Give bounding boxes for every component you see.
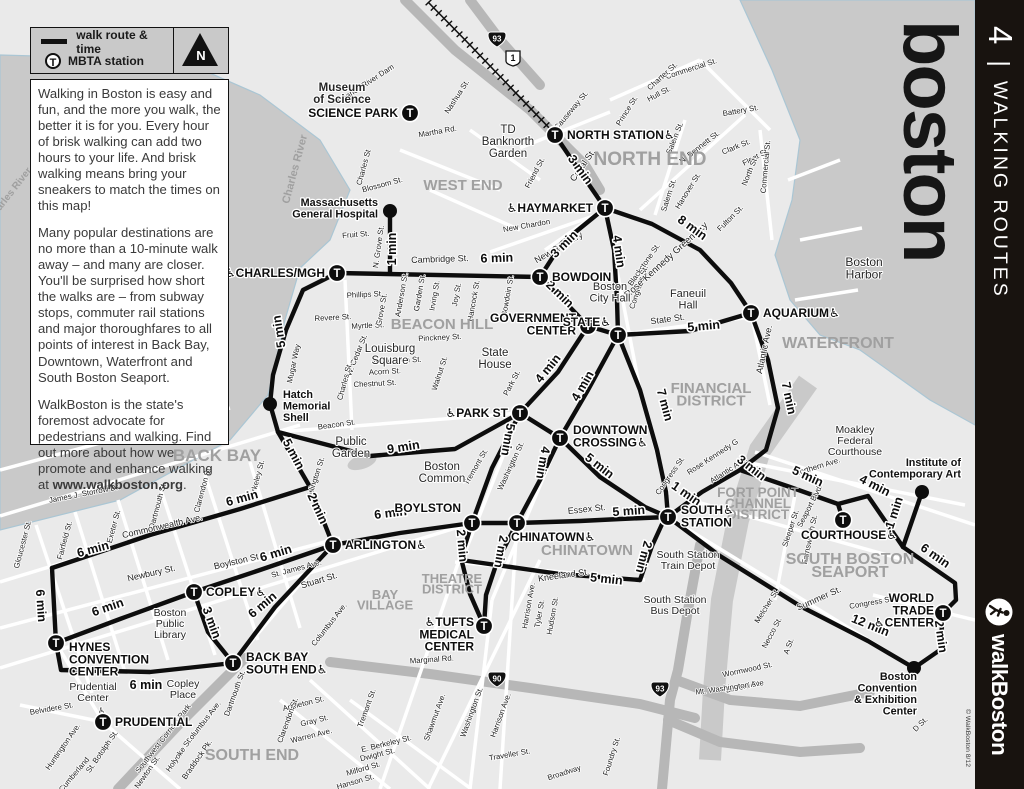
station-label: SCIENCE PARK [308,106,398,120]
destination-label: Center [883,706,918,718]
shield-number: 93 [656,685,665,694]
station-label: ARLINGTON♿ [345,538,427,552]
walkboston-brand-text: walkBoston [986,634,1012,755]
place-label: Place [170,689,196,701]
intro-paragraph-1: Walking in Boston is easy and fun, and t… [38,86,221,214]
place-label: House [478,359,511,371]
destination-dot [915,485,929,499]
walk-time-label: 1 min [385,233,399,266]
section-title: WALKING ROUTES [989,81,1012,299]
walk-time-label: 5 min [687,318,721,335]
place-label: Center [77,692,109,704]
walk-time-label: 6 min [480,250,513,265]
copyright-label: © WalkBoston 8/12 [964,709,972,767]
compass-rose: N [173,28,228,73]
neighborhood-label: SEAPORT [811,564,889,581]
place-label: City Hall [590,293,631,305]
walk-time-label: 6 min [130,678,163,692]
station-label: CHINATOWN♿ [511,530,595,544]
place-label: Courthouse [828,446,882,458]
station-label: ♿HAYMARKET [507,201,594,215]
destination-label: Convention [858,683,917,695]
shield-number: 1 [510,53,515,63]
walkboston-url: www.walkboston.org [53,477,183,492]
us-1-shield: 1 [506,51,520,66]
neighborhood-label: WEST END [423,177,502,194]
walk-time-label: 6 min [33,589,49,623]
destination-label: & Exhibition [854,694,917,706]
sidebar-title: 4 | WALKING ROUTES [979,26,1021,398]
t-station-letter: T [939,608,946,620]
station-label: CENTER [425,640,475,654]
t-station-letter: T [551,130,558,142]
destination-label: Boston [880,671,917,683]
place-label: Museum [319,82,366,94]
station-label: BOWDOIN [552,270,611,284]
t-station-letter: T [747,308,754,320]
destination-label: General Hospital [292,209,378,221]
station-label: STATION [681,515,732,529]
place-label: Hall [679,300,698,312]
walk-time-label: 5 min [612,503,646,519]
destination-label: Hatch [283,389,313,401]
station-label: ♿CENTER [874,616,934,630]
t-station-letter: T [329,540,336,552]
t-station-letter: T [99,717,106,729]
place-label: Banknorth [482,136,534,148]
neighborhood-label: DISTRICT [727,507,790,522]
place-label: Garden [332,448,370,460]
station-label: BOYLSTON [395,501,461,515]
station-label: ♿CHARLES/MGH [225,266,325,280]
place-label: of Science [313,94,371,106]
page-number: 4 [981,26,1019,44]
intro-text-box: Walking in Boston is easy and fun, and t… [30,79,229,445]
t-station-letter: T [516,408,523,420]
walkboston-map-page: { "legend": {"route_label": "walk route … [0,0,1024,789]
t-station-letter: T [601,203,608,215]
place-label: Faneuil [670,288,706,300]
t-station-letter: T [406,108,413,120]
place-label: Boston [424,461,460,473]
t-station-letter: T [664,512,671,524]
t-station-letter: T [614,330,621,342]
destination-dot [263,397,277,411]
shield-number: 93 [493,35,502,44]
destination-label: Shell [283,412,309,424]
place-label: Harbor [846,268,883,282]
neighborhood-label: SOUTH END [205,747,299,764]
station-label: PRUDENTIAL [115,715,192,729]
walking-person-icon [984,597,1014,627]
station-label: AQUARIUM♿ [763,306,840,320]
t-station-letter: T [190,587,197,599]
neighborhood-label: VILLAGE [357,598,414,613]
place-label: Bus Depot [650,605,699,617]
place-label: Garden [489,148,527,160]
station-label: ♿PARK ST [445,406,508,420]
neighborhood-label: CHINATOWN [541,542,633,559]
place-label: Library [154,629,187,641]
street-label: Acorn St. [369,366,402,377]
shield-number: 90 [493,675,502,684]
destination-label: Massachusetts [301,197,378,209]
destination-dot [383,204,397,218]
place-label: State [482,347,509,359]
place-label: Louisburg [365,343,416,355]
t-station-letter: T [839,515,846,527]
t-station-letter: T [468,518,475,530]
legend-route-label: walk route & time [76,28,173,56]
station-label: STATE♿ [563,315,611,329]
place-label: Square [371,355,408,367]
station-label: NORTH STATION♿ [567,128,675,142]
street-label: Phillips St. [346,289,383,300]
mbta-station-icon: T [45,53,61,69]
station-label: CROSSING♿ [573,435,648,449]
destination-label: Institute of [906,457,962,469]
t-station-letter: T [229,658,236,670]
place-label: TD [500,124,515,136]
neighborhood-label: WATERFRONT [782,335,894,352]
intro-paragraph-3: WalkBoston is the state's foremost advoc… [38,397,221,493]
t-station-letter: T [52,638,59,650]
place-label: Public [335,436,367,448]
neighborhood-label: BEACON HILL [391,316,494,333]
t-station-letter: T [556,433,563,445]
destination-label: Contemporary Art [869,469,961,481]
neighborhood-label: NORTH END [594,149,707,170]
t-station-letter: T [480,621,487,633]
place-label: Common [419,473,466,485]
divider: | [986,60,1015,67]
street-label: Cambridge St. [411,253,469,265]
place-label: Train Depot [661,560,716,572]
destination-label: Memorial [283,401,330,413]
station-label: SOUTH END♿ [246,662,327,676]
legend-station-label: MBTA station [68,54,144,68]
station-label: CENTER [69,665,119,679]
map-legend: walk route & time T MBTA station N [30,27,229,74]
neighborhood-label: DISTRICT [676,392,745,409]
t-station-letter: T [333,268,340,280]
intro-paragraph-2: Many popular destinations are no more th… [38,225,221,385]
station-label: COURTHOUSE♿ [801,528,897,542]
walkboston-logo: walkBoston [978,597,1020,777]
walk-time-label: 2 min [454,529,471,563]
walk-route-swatch [41,39,67,44]
t-station-letter: T [536,272,543,284]
street-label: Revere St. [314,312,351,323]
t-station-letter: T [513,518,520,530]
page-word-boston: boston [888,20,970,365]
compass-north-label: N [174,48,228,63]
station-label: COPLEY♿ [206,585,266,599]
neighborhood-label: DISTRICT [422,582,482,597]
